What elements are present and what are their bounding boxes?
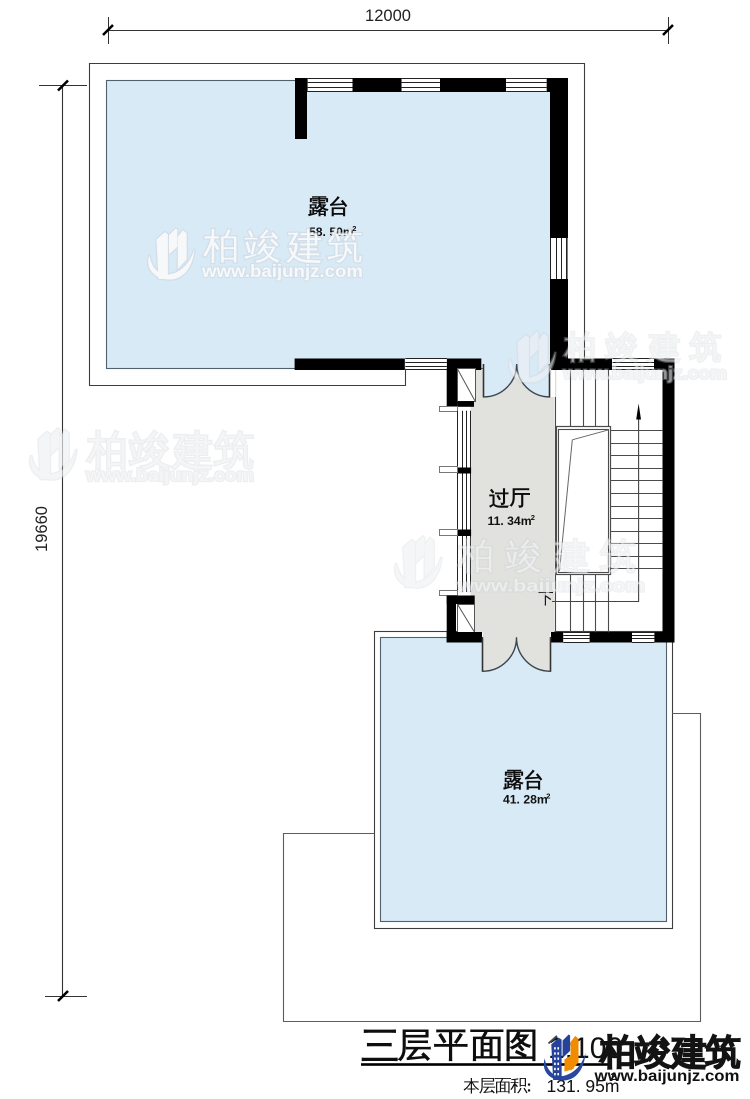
svg-text:www.baijunjz.com: www.baijunjz.com [201,261,363,281]
svg-text:11. 34m: 11. 34m [488,514,532,528]
svg-text:12000: 12000 [365,7,411,25]
svg-text::: : [526,1079,531,1096]
svg-text:www.baijunjz.com: www.baijunjz.com [85,465,254,485]
svg-text:2: 2 [611,1072,617,1083]
svg-text:41. 28m: 41. 28m [503,793,548,807]
svg-text:www.baijunjz.com: www.baijunjz.com [456,576,645,596]
svg-text:2: 2 [546,792,550,801]
svg-text:19660: 19660 [33,506,51,552]
svg-text:www.baijunjz.com: www.baijunjz.com [562,363,727,383]
svg-text:2: 2 [531,513,535,522]
svg-text:2: 2 [352,224,356,233]
